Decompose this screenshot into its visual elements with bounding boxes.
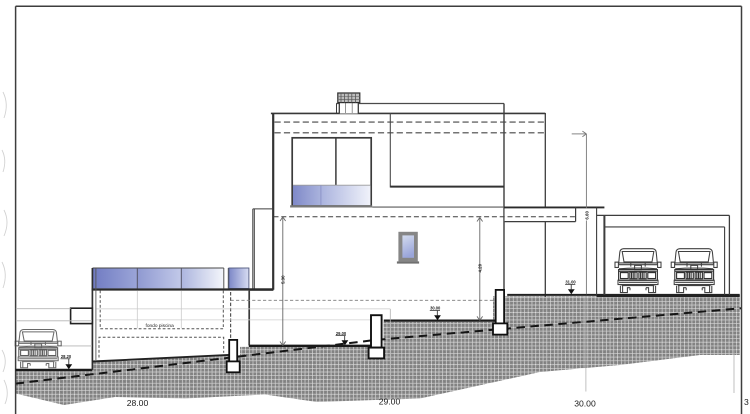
svg-text:29.00: 29.00 xyxy=(379,397,401,407)
svg-text:30.00: 30.00 xyxy=(574,399,596,409)
svg-text:6.60: 6.60 xyxy=(584,210,589,219)
svg-text:5.30: 5.30 xyxy=(281,275,286,284)
svg-text:3: 3 xyxy=(744,397,749,407)
svg-text:31.00: 31.00 xyxy=(565,280,576,285)
svg-text:4.20: 4.20 xyxy=(478,263,483,272)
svg-text:28.20: 28.20 xyxy=(61,354,72,359)
svg-text:30.00: 30.00 xyxy=(430,306,441,311)
svg-text:fondo piscina: fondo piscina xyxy=(146,323,175,329)
svg-text:28.00: 28.00 xyxy=(127,398,149,408)
svg-text:29.00: 29.00 xyxy=(336,331,347,336)
